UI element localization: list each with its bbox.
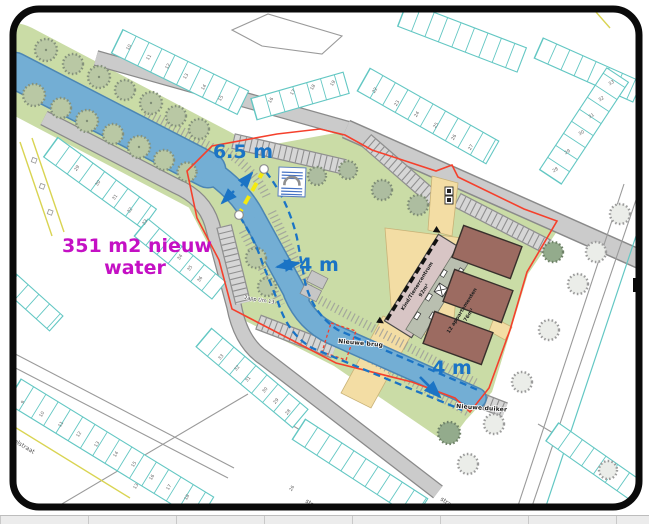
- width-annotation-4m-mid: 4 m: [299, 254, 339, 276]
- map-viewport[interactable]: Kind/Tienercentrum 92m² 12 apparteme: [0, 0, 649, 524]
- site-plan-map: Kind/Tienercentrum 92m² 12 apparteme: [0, 0, 649, 524]
- new-water-annotation-line1: 351 m2 nieuw: [62, 235, 212, 257]
- width-annotation-6-5m: 6.5 m: [213, 141, 273, 163]
- bridge-photo-icon[interactable]: [278, 167, 306, 197]
- width-annotation-4m-bottom: 4 m: [432, 357, 472, 379]
- new-water-annotation-line2: water: [104, 257, 166, 279]
- frame-notch: [633, 278, 642, 292]
- bottom-strip: [0, 515, 649, 524]
